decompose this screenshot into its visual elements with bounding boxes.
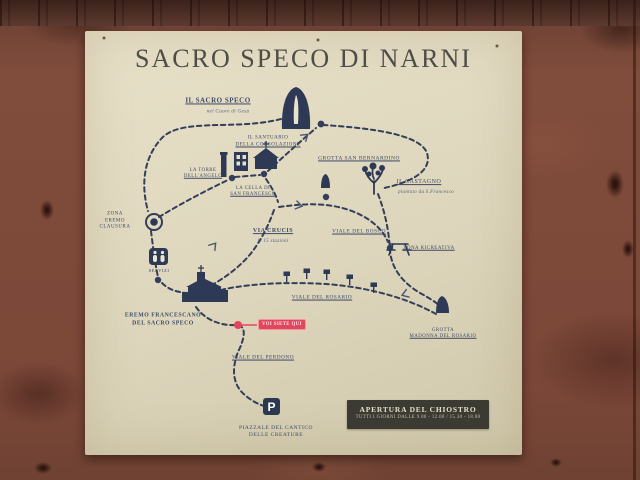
label-viale-del-bosco: VIALE DEL BOSCO: [332, 229, 386, 236]
parking-letter: P: [267, 400, 275, 414]
clausura-circle-icon: [146, 214, 162, 230]
wood-knot: [40, 200, 54, 220]
wood-knot: [606, 170, 624, 198]
label-santuario-consolazione: IL SANTUARIO DELLA CONSOLAZIONE: [236, 136, 301, 149]
trail-via-crucis: [212, 210, 274, 285]
you-are-here-label: VOI SIETE QUI: [258, 319, 306, 330]
convent-building-icon: [234, 152, 248, 171]
restroom-icon: [149, 248, 168, 265]
trail-map-graphic: [85, 31, 522, 455]
label-eremo-francescano: EREMO FRANCESCANO DEL SACRO SPECO: [125, 312, 201, 327]
label-servizi: SERVIZI: [149, 268, 170, 274]
trail-clausura-to-torre: [159, 180, 228, 217]
wood-groove: [633, 0, 636, 480]
opening-hours-title: APERTURA DEL CHIOSTRO: [347, 405, 489, 414]
screw-specks: [103, 37, 499, 48]
label-grotta-madonna-rosario: GROTTA MADONNA DEL ROSARIO: [410, 328, 477, 340]
label-grotta-san-bernardino: GROTTA SAN BERNARDINO: [318, 155, 400, 162]
label-il-castagno: IL CASTAGNO: [397, 179, 442, 187]
label-il-sacro-speco: IL SACRO SPECO: [185, 96, 250, 105]
rosario-signpost-icons: [284, 269, 378, 294]
label-piazzale-cantico: PIAZZALE DEL CANTICO DELLE CREATURE: [239, 425, 313, 439]
label-viale-del-rosario: VIALE DEL ROSARIO: [292, 295, 352, 302]
wood-knot: [622, 240, 634, 258]
you-are-here-marker: [234, 321, 257, 329]
grotta-rosario-icon: [436, 296, 449, 313]
trail-torre-to-santuario: [235, 175, 260, 177]
label-viale-del-perdono: VIALE DEL PERDONO: [232, 355, 294, 362]
sacro-speco-cave-icon: [282, 87, 310, 129]
parking-icon: P: [263, 398, 280, 415]
label-castagno-subtitle: piantato da S.Francesco: [398, 190, 454, 197]
wood-knot: [34, 462, 52, 474]
trail-map-sign: SACRO SPECO DI NARNI: [85, 31, 522, 455]
wood-plank-grooves: [0, 0, 640, 26]
eremo-monastery-icon: [182, 265, 228, 302]
chestnut-tree-icon: [362, 163, 385, 195]
trail-viale-del-bosco: [279, 204, 388, 242]
opening-hours-text: TUTTI I GIORNI DALLE 9.00 - 12.00 / 15.3…: [347, 415, 489, 420]
label-via-crucis: VIA CRUCIS: [253, 228, 293, 236]
label-torre-angelo: LA TORRE DELL'ANGELO: [184, 168, 222, 180]
label-cella-san-francesco: LA CELLA DI SAN FRANCESCO: [230, 186, 276, 198]
label-zona-eremo-clausura: ZONA EREMO CLAUSURA: [100, 211, 131, 231]
label-via-crucis-subtitle: le 15 stazioni: [258, 239, 289, 246]
wood-knot: [550, 458, 562, 467]
trail-servizi-to-eremo: [162, 283, 187, 293]
label-zona-ricreativa: ZONA RICREATIVA: [403, 246, 454, 253]
label-sacro-speco-subtitle: nel Cuore di Gesù: [207, 109, 250, 116]
opening-hours-box: APERTURA DEL CHIOSTRO TUTTI I GIORNI DAL…: [347, 400, 489, 429]
wooden-board: SACRO SPECO DI NARNI: [0, 0, 640, 480]
wood-knot: [312, 462, 326, 472]
grotta-san-bernardino-icon: [321, 174, 330, 188]
